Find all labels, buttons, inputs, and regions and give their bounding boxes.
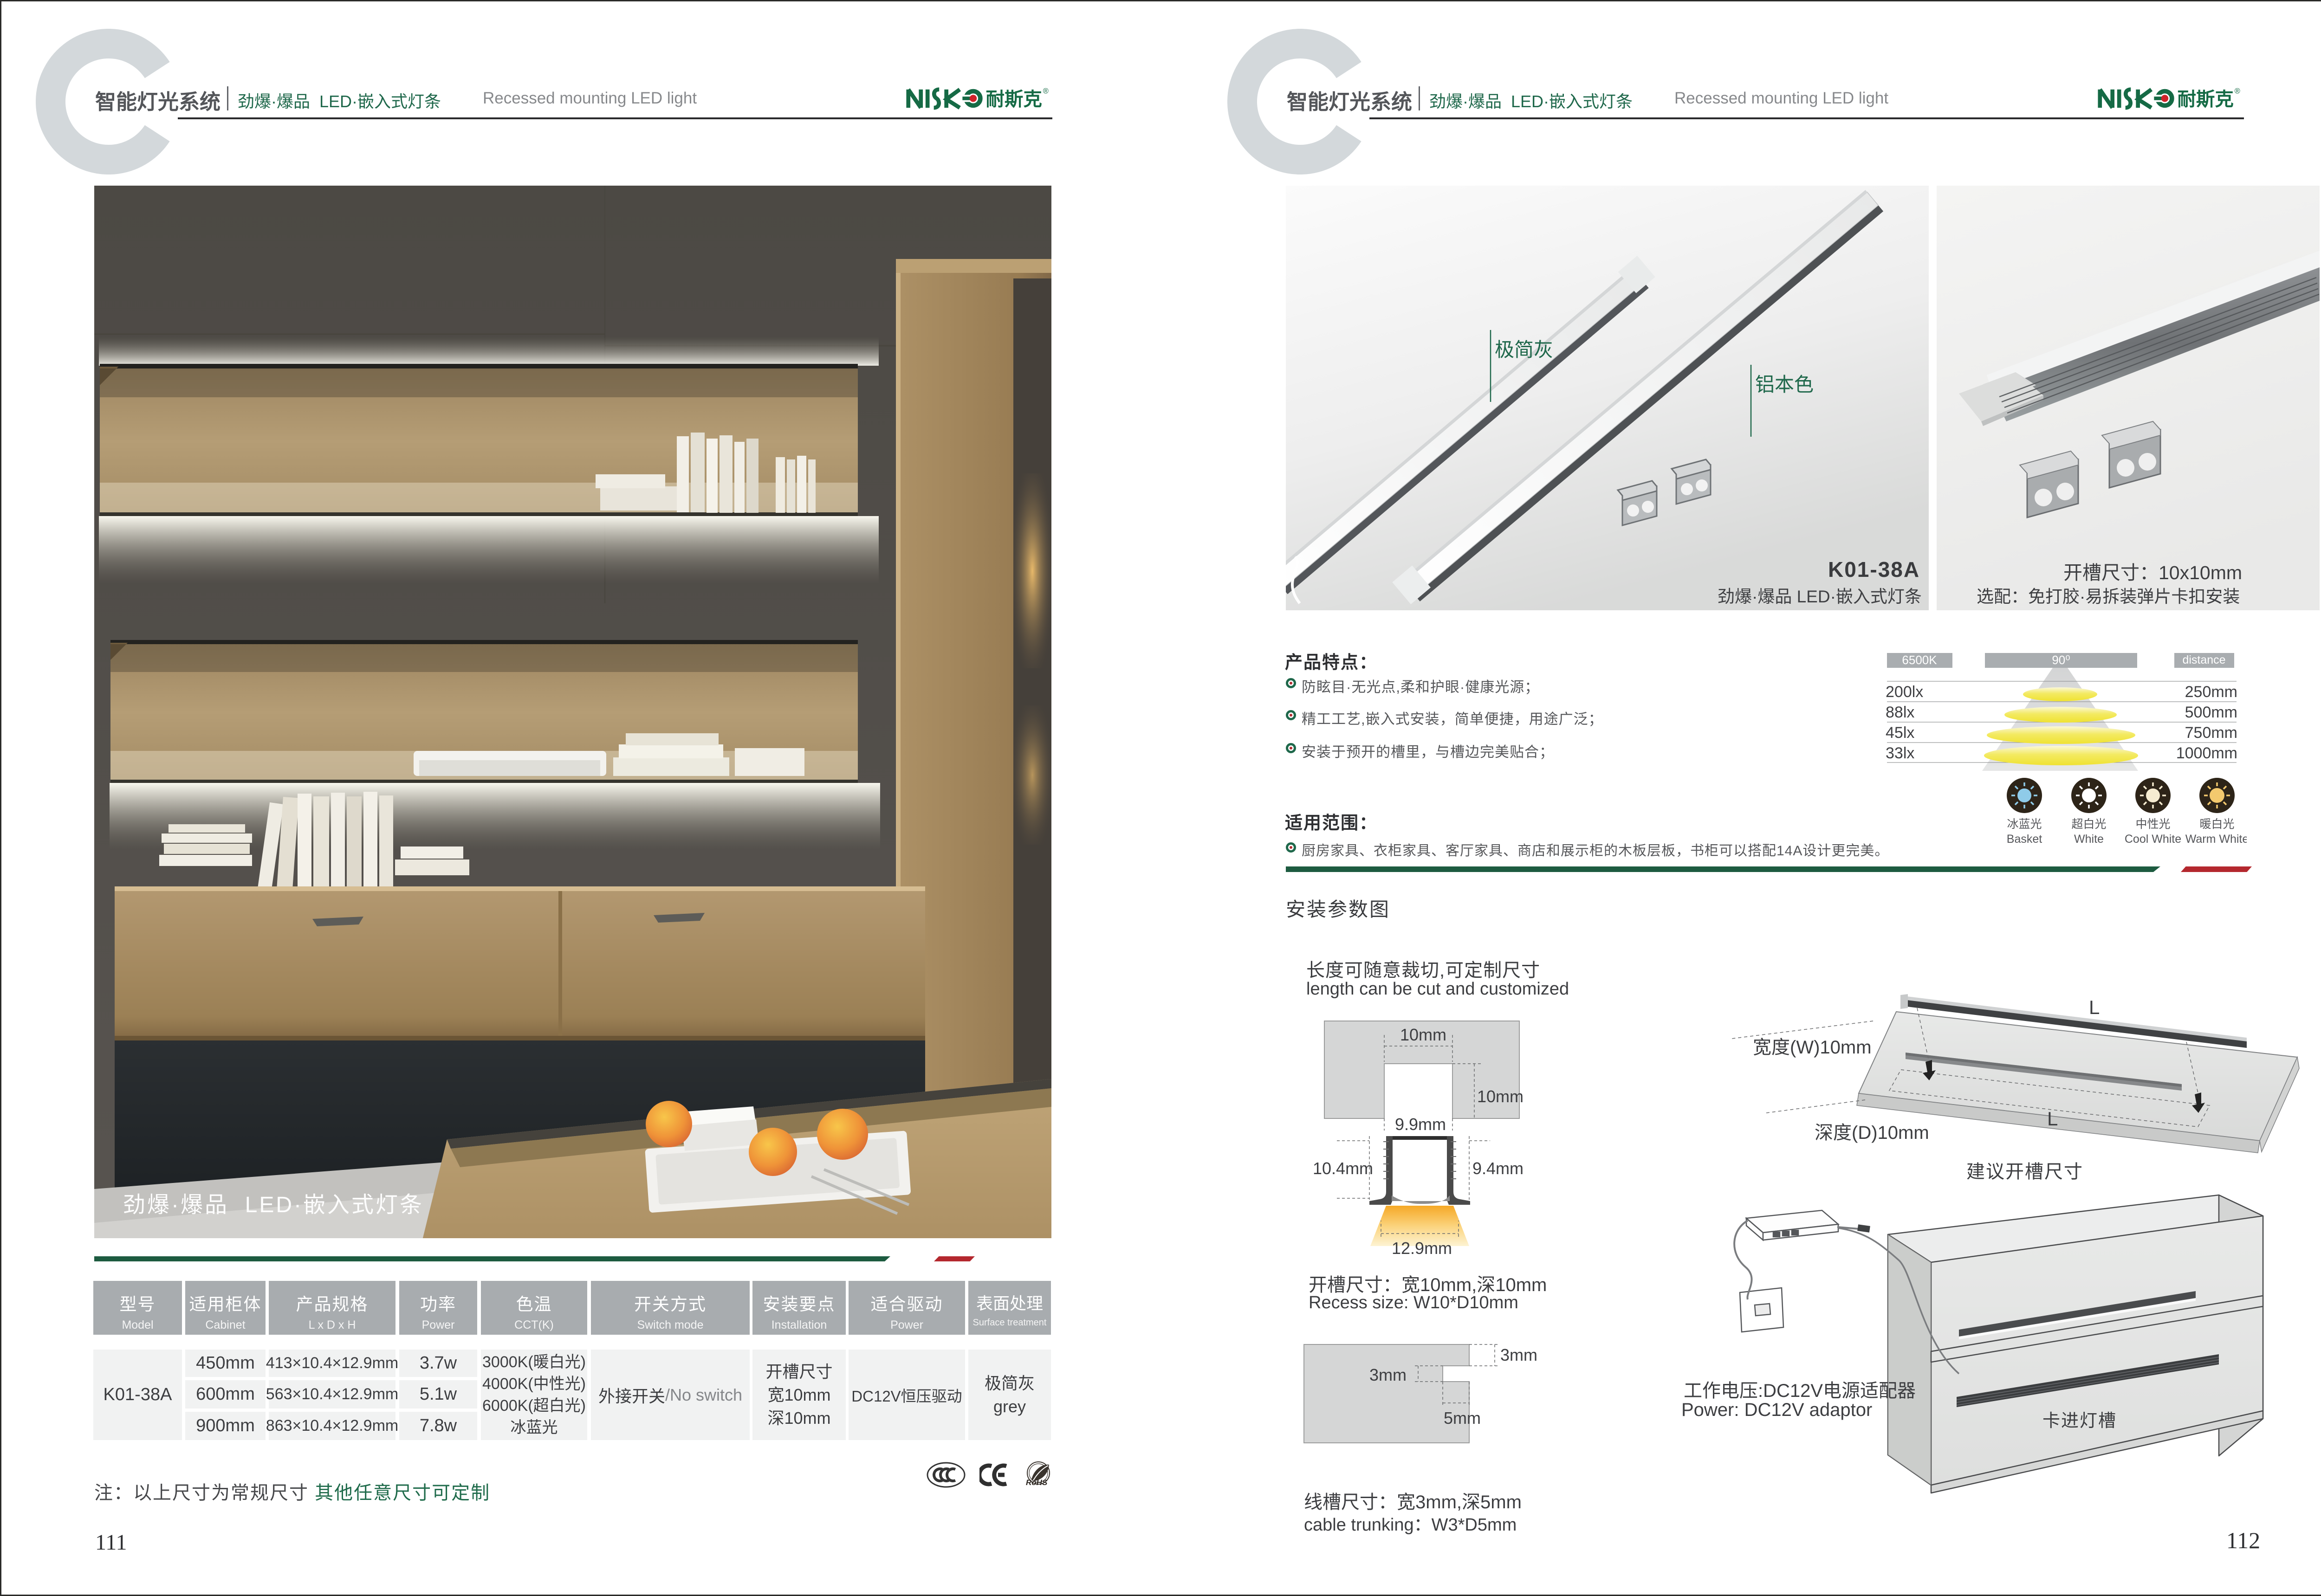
svg-text:Warm White: Warm White — [2185, 833, 2247, 846]
svg-text:铝本色: 铝本色 — [1755, 374, 1814, 395]
svg-text:耐斯克: 耐斯克 — [2177, 88, 2233, 110]
svg-text:耐斯克: 耐斯克 — [985, 88, 1042, 110]
svg-text:3mm: 3mm — [1369, 1365, 1407, 1384]
svg-text:6500K: 6500K — [1902, 653, 1937, 667]
svg-text:250mm: 250mm — [2185, 683, 2237, 701]
svg-text:45lx: 45lx — [1886, 724, 1914, 742]
svg-text:10.4mm: 10.4mm — [1313, 1159, 1373, 1178]
svg-text:暖白光: 暖白光 — [2199, 818, 2234, 831]
svg-text:500mm: 500mm — [2185, 704, 2237, 721]
svg-text:Basket: Basket — [2007, 833, 2042, 846]
svg-text:®: ® — [1043, 87, 1049, 95]
svg-text:L: L — [2089, 996, 2100, 1018]
svg-text:冰蓝光: 冰蓝光 — [2007, 818, 2042, 831]
svg-text:1000mm: 1000mm — [2176, 744, 2237, 762]
svg-text:3mm: 3mm — [1500, 1345, 1537, 1364]
svg-text:200lx: 200lx — [1886, 683, 1923, 701]
svg-text:RoHS: RoHS — [1026, 1478, 1048, 1487]
svg-text:750mm: 750mm — [2185, 724, 2237, 742]
svg-text:®: ® — [2235, 87, 2240, 95]
svg-text:88lx: 88lx — [1886, 704, 1914, 721]
svg-text:33lx: 33lx — [1886, 744, 1914, 762]
svg-text:10mm: 10mm — [1477, 1087, 1524, 1106]
svg-text:5mm: 5mm — [1444, 1409, 1481, 1428]
svg-text:distance: distance — [2182, 653, 2225, 666]
svg-text:9.4mm: 9.4mm — [1472, 1159, 1524, 1178]
svg-text:90⁰: 90⁰ — [2052, 653, 2070, 667]
svg-text:Cool White: Cool White — [2125, 833, 2181, 846]
svg-text:12.9mm: 12.9mm — [1392, 1239, 1452, 1258]
svg-text:中性光: 中性光 — [2135, 818, 2170, 831]
svg-text:White: White — [2074, 833, 2104, 846]
svg-text:极简灰: 极简灰 — [1495, 339, 1553, 361]
svg-text:9.9mm: 9.9mm — [1395, 1115, 1446, 1134]
svg-text:10mm: 10mm — [1400, 1025, 1446, 1044]
svg-text:超白光: 超白光 — [2071, 818, 2106, 831]
svg-text:L: L — [2047, 1108, 2058, 1130]
